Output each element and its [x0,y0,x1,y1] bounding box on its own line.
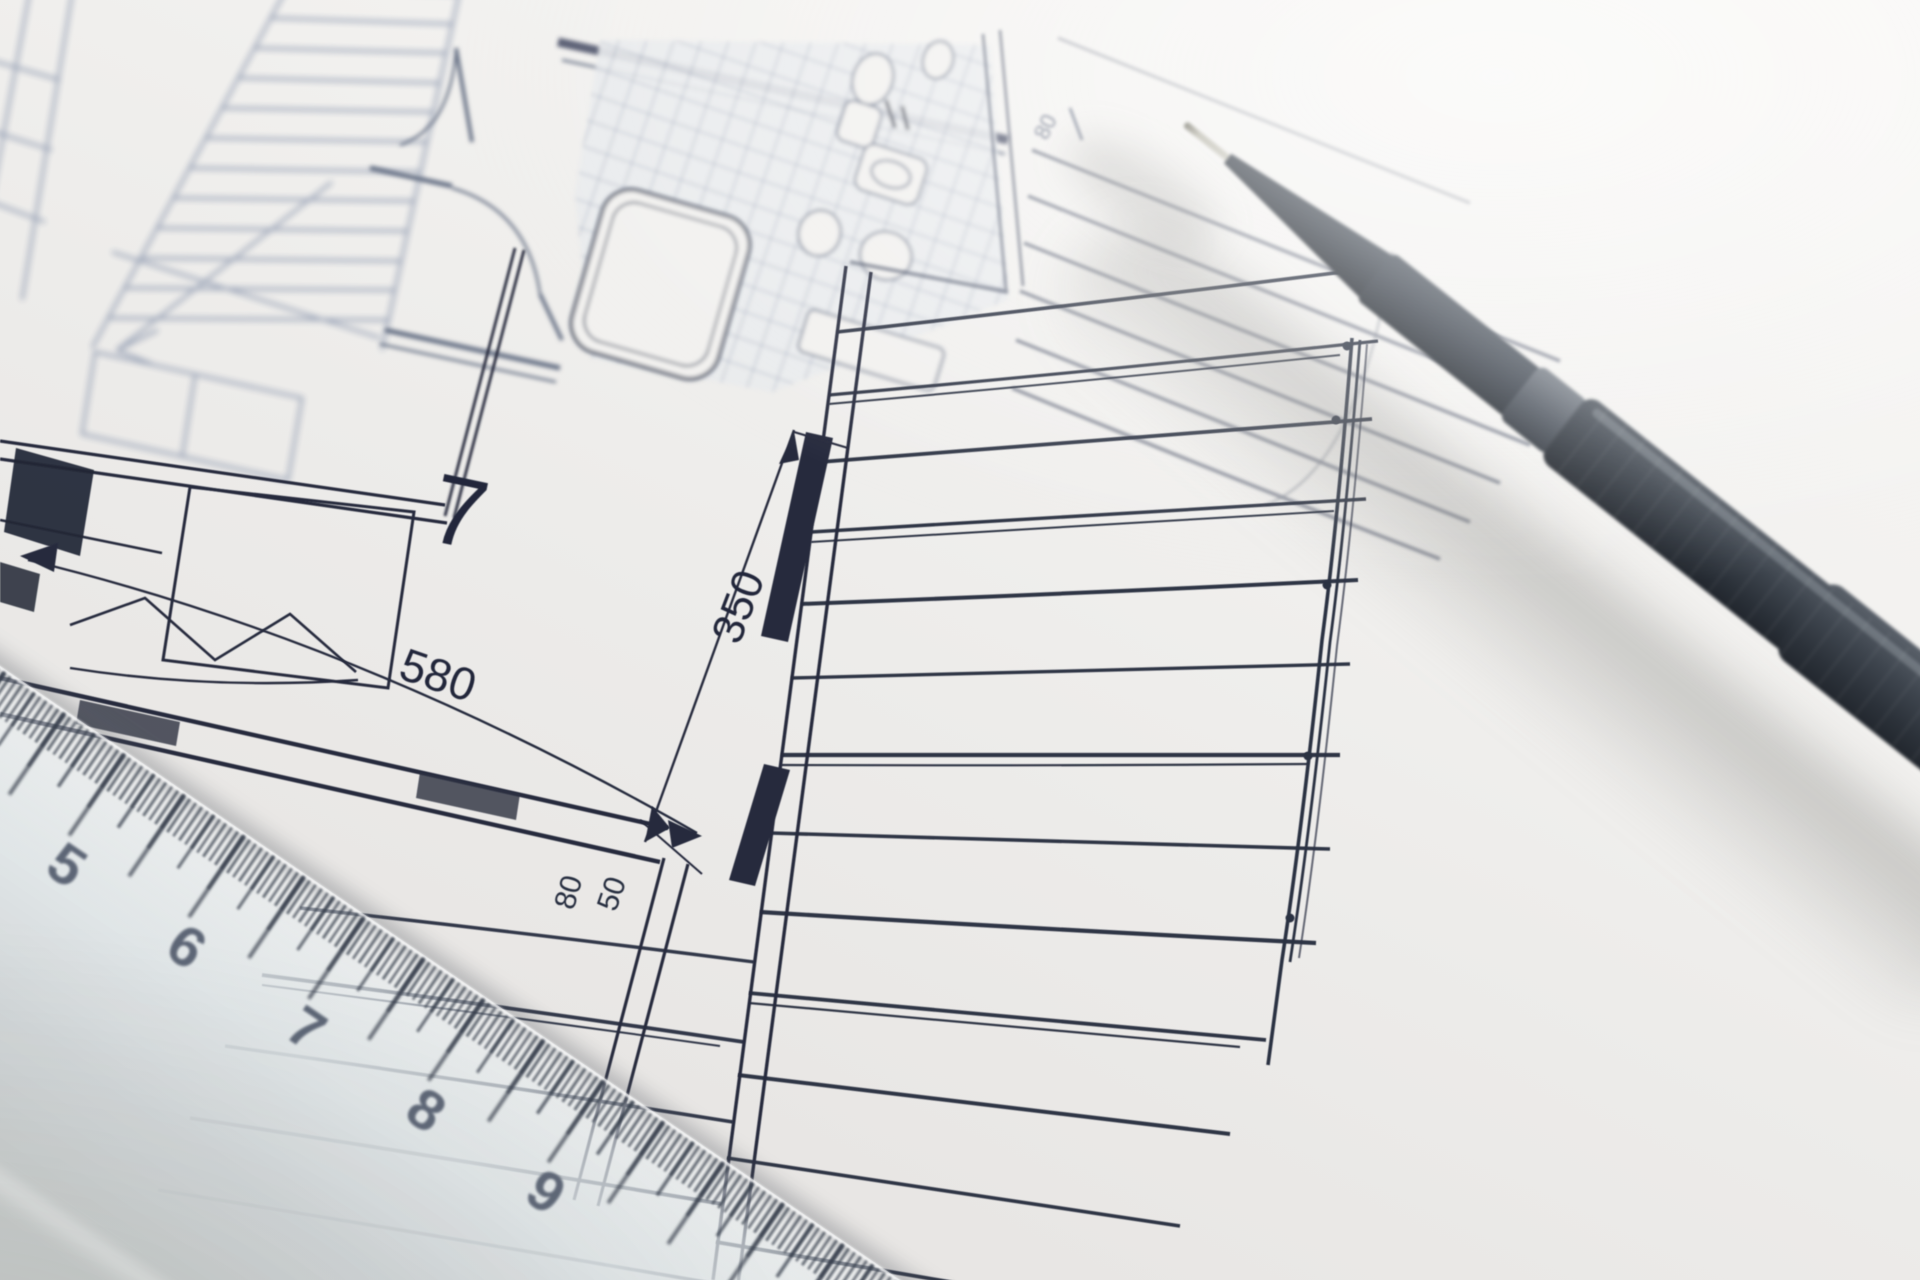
bed-zigzag [70,598,356,672]
dim-arrow [779,431,799,464]
dim-arrow [668,820,702,848]
room-number-label: 7 [421,452,497,571]
bed [163,487,414,688]
stairs [0,0,459,480]
door-arc [452,188,540,294]
dim-upper-label: 80 [1029,110,1062,143]
dim-50-label: 50 [591,873,633,915]
dim-80-label: 80 [548,872,589,913]
dim-350-label: 350 [702,564,774,650]
dim-arrow [20,543,58,572]
photo-scene: 580 350 7 80 50 80 4 5 6 7 8 9 [0,0,1920,1280]
dim-580-label: 580 [393,638,482,712]
